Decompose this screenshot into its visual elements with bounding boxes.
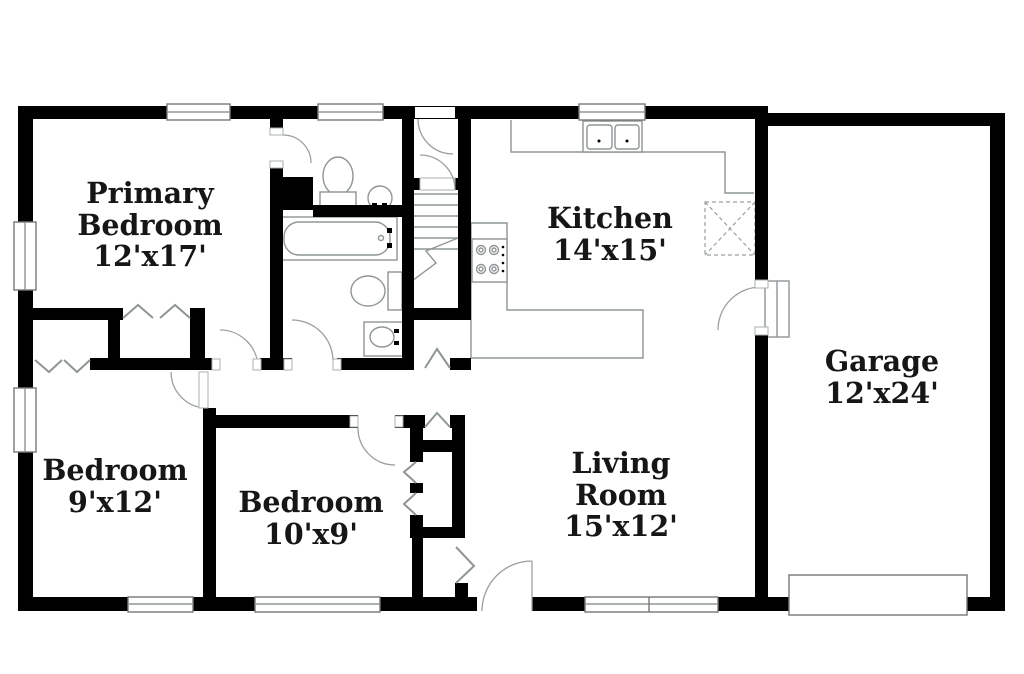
bedroom-9x12-dims: 9'x12' [68, 485, 162, 519]
living-room-dims: 15'x12' [564, 509, 678, 543]
window [579, 104, 645, 120]
bedroom-10x9-closet-bifold [404, 462, 416, 483]
toilet-bowl [323, 157, 353, 195]
toilet-bowl [351, 276, 385, 306]
left-wall [18, 106, 33, 611]
floor-plan-drawing: Primary Bedroom 12'x17' Kitchen 14'x15' … [0, 0, 1024, 674]
kitchen-label: Kitchen [547, 201, 673, 235]
hall-linen-closet-bifold [425, 413, 450, 427]
toilet-tank [388, 272, 402, 310]
garage-label: Garage [825, 344, 939, 378]
back-door-opening [415, 107, 455, 118]
bathtub [284, 222, 390, 255]
front-door-opening [477, 596, 532, 613]
right-wall [990, 113, 1005, 611]
bedroom-9x12-closet-bifold [35, 360, 62, 372]
bedroom-10x9-closet-bifold [404, 493, 416, 515]
stair-break-mark [412, 238, 458, 281]
floor-plan: Primary Bedroom 12'x17' Kitchen 14'x15' … [0, 0, 1024, 674]
window [14, 222, 36, 290]
entry-coat-closet-bifold [456, 547, 474, 583]
bedroom-10x9-label: Bedroom [238, 485, 383, 519]
primary-bedroom-label: Primary [86, 176, 215, 210]
window [167, 104, 230, 120]
primary-closet-bifold [160, 305, 190, 318]
bedroom-10x9-dims: 10'x9' [264, 517, 358, 551]
living-room-label: Room [575, 478, 667, 512]
garage-top-wall [755, 113, 1005, 126]
window [318, 104, 383, 120]
bathroom-door-swing [292, 320, 333, 361]
window [14, 388, 36, 452]
basement-stairs [412, 194, 458, 281]
range-stove [472, 239, 507, 282]
bedroom-9x12-label: Bedroom [42, 453, 187, 487]
bedroom-9x12-closet-bifold [64, 360, 90, 372]
garage-wall-lower [755, 327, 768, 598]
garage-door [789, 575, 967, 615]
bedroom-9x12-door-leaf [199, 372, 208, 408]
pedestal-sink [370, 327, 394, 347]
stair-door-opening [420, 178, 455, 190]
garage-wall-upper [755, 113, 768, 288]
living-room-label: Living [572, 446, 671, 480]
bedroom-divider-wall [203, 408, 216, 611]
primary-bedroom-label: Bedroom [77, 208, 222, 242]
ensuite-door-swing [283, 135, 311, 163]
primary-bedroom-door-swing [220, 330, 258, 368]
kitchen-dims: 14'x15' [553, 233, 667, 267]
garage-entry-steps [765, 281, 789, 337]
primary-closet-bifold [123, 305, 153, 318]
bedroom-10x9-door-swing [358, 428, 395, 465]
garage-entry-door-swing [718, 287, 761, 330]
utility-pad-x [705, 202, 755, 255]
primary-bedroom-dims: 12'x17' [93, 239, 207, 273]
back-door-swing [418, 119, 453, 154]
understair-closet-bifold [425, 349, 450, 368]
bath-wall-mass [270, 177, 313, 210]
top-wall [18, 106, 768, 119]
garage-dims: 12'x24' [825, 376, 939, 410]
window [255, 597, 380, 612]
window [128, 597, 193, 612]
window [585, 597, 718, 612]
toilet-tank [320, 192, 356, 206]
